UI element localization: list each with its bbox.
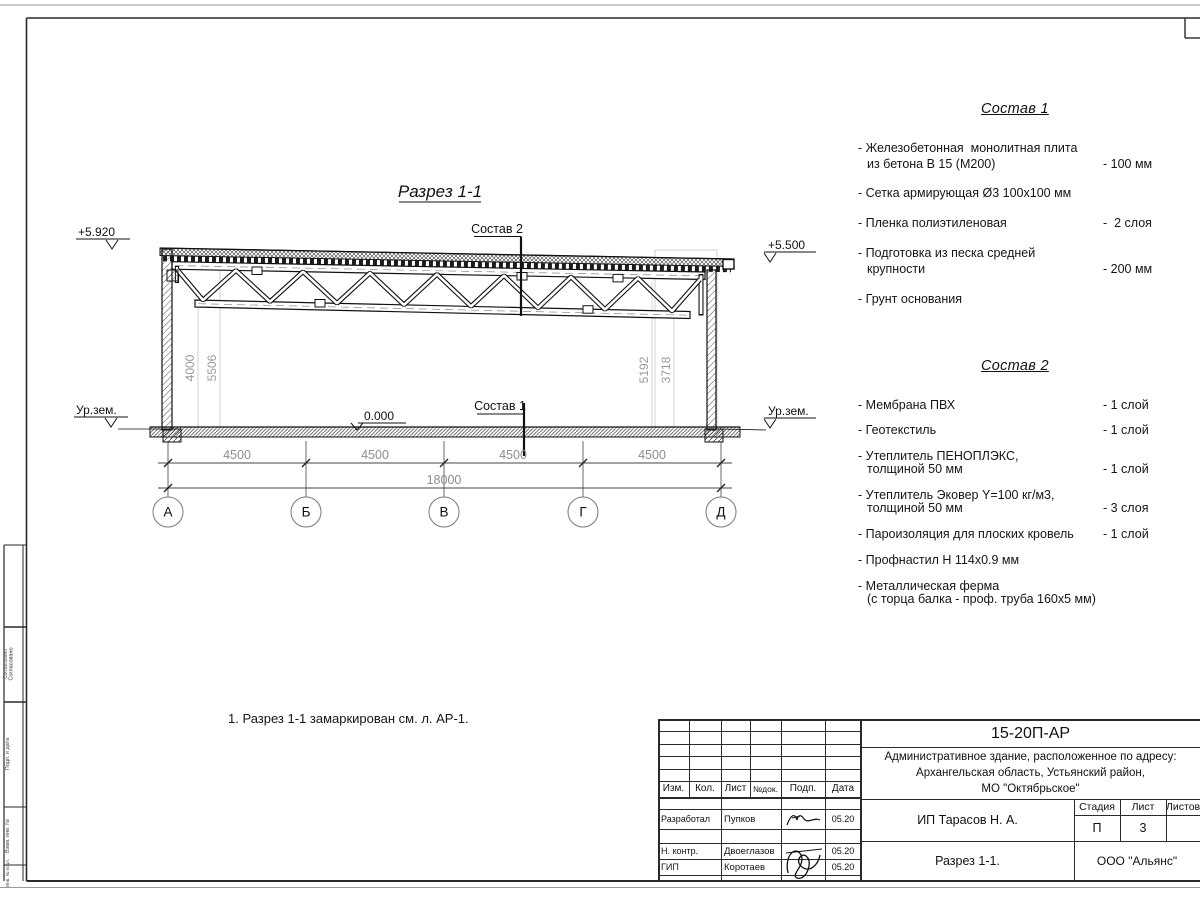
truss-bearing-left [167,270,178,281]
axis-label: В [439,505,448,520]
col-ndok: №док. [750,781,781,797]
sheet-value: 3 [1120,816,1166,841]
stage-label: Стадия [1074,800,1120,815]
comp2-item: толщиной 50 мм [867,502,963,515]
ground-level-right: Ур.зем. [764,404,816,428]
comp1-item-value: - 2 слоя [1103,217,1152,230]
comp2-item: (с торца балка - проф. труба 160х5 мм) [867,593,1096,606]
svg-text:5192: 5192 [637,356,651,383]
row-date: 05.20 [825,844,861,859]
elevation-top-left: +5.920 [76,225,130,249]
signature-gip [782,843,826,881]
comp2-item: толщиной 50 мм [867,463,963,476]
comp2-item: - Профнастил Н 114х0.9 мм [858,554,1019,567]
left-strip-label: Подп. и дата [5,737,11,770]
comp2-item-value: - 1 слой [1103,463,1149,476]
col-kol: Кол. [689,781,721,797]
sheet-title: Разрез 1-1. [861,842,1074,881]
foundation-left [163,429,181,442]
dimension-chain: 4500 4500 4500 4500 18000 [158,441,732,497]
left-strip-label: Взам. инв. № [5,819,11,853]
stage-value: П [1074,816,1120,841]
svg-text:Ур.зем.: Ур.зем. [768,404,809,418]
comp1-item: - Сетка армирующая Ø3 100х100 мм [858,187,1071,200]
title-block: Изм. Кол. Лист №док. Подп. Дата Разработ… [658,719,1200,881]
doc-number: 15-20П-АР [861,721,1200,747]
comp2-item-value: - 1 слой [1103,424,1149,437]
col-list: Лист [721,781,750,797]
svg-text:5506: 5506 [205,354,219,381]
sheet-label: Лист [1120,800,1166,815]
svg-text:4500: 4500 [638,448,666,462]
axis-bubbles: А Б В Г Д [153,497,736,527]
row-name: Пупков [724,810,781,829]
comp2-item-value: - 1 слой [1103,399,1149,412]
ground-level-left: Ур.зем. [74,403,128,427]
comp1-item: - Железобетонная монолитная плита [858,142,1077,155]
elevation-top-right: +5.500 [764,238,816,262]
comp2-item-value: - 3 слоя [1103,502,1148,515]
row-name: Коротаев [724,860,781,875]
row-role: Разработал [661,810,721,829]
project-line: Архангельская область, Устьянский район, [861,765,1200,781]
svg-text:4500: 4500 [223,448,251,462]
svg-text:4000: 4000 [183,354,197,381]
left-strip-label: Согласовано [9,647,15,680]
client-name: ИП Тарасов Н. А. [861,800,1074,841]
svg-text:3718: 3718 [659,356,673,383]
project-line: МО "Октябрьское" [861,781,1200,797]
svg-text:4500: 4500 [499,448,527,462]
view-title-text: Разрез 1-1 [398,182,482,201]
row-role: Н. контр. [661,844,721,859]
svg-text:+5.920: +5.920 [78,225,115,239]
comp1-item: - Грунт основания [858,293,962,306]
vertical-dimensions: 4000 5506 5192 3718 [183,354,673,383]
comp2-title: Состав 2 [981,358,1049,374]
left-margin-strip: Согласовано Согласовано Подп. и дата Вза… [3,545,27,887]
signature-razrabotal [784,811,824,829]
comp1-item-value: - 100 мм [1103,158,1152,171]
steel-truss [172,262,705,319]
column-axis-D [707,270,716,430]
svg-text:0.000: 0.000 [364,409,394,423]
comp1-leader-label: Состав 1 [474,399,526,413]
sheets-label: Листов [1166,800,1200,815]
foundation-right [705,429,723,442]
col-data: Дата [825,781,861,797]
corner-box [1185,18,1200,38]
comp1-item: - Подготовка из песка средней [858,247,1035,260]
comp2-item: - Пароизоляция для плоских кровель [858,528,1074,541]
col-izm: Изм. [658,781,689,797]
comp2-item: - Мембрана ПВХ [858,399,955,412]
edge-beam [723,260,734,270]
total-dimension: 18000 [427,473,462,487]
view-title: Разрез 1-1 [398,182,482,202]
comp1-item-value: - 200 мм [1103,263,1152,276]
row-date: 05.20 [825,860,861,875]
comp1-item: из бетона В 15 (М200) [867,158,995,171]
left-strip-label: Согласовано [3,649,9,679]
comp2-leader-label: Состав 2 [471,222,523,236]
axis-label: А [163,505,172,520]
comp2-item-value: - 1 слой [1103,528,1149,541]
row-role: ГИП [661,860,721,875]
floor-slab [118,427,766,442]
axis-label: Б [302,505,311,520]
row-name: Двоеглазов [724,844,781,859]
comp2-item: - Геотекстиль [858,424,936,437]
comp1-title: Состав 1 [981,101,1049,117]
left-strip-label: Инв. № подл. [5,859,10,887]
drawing-sheet: Согласовано Согласовано Подп. и дата Вза… [0,0,1200,900]
axis-label: Г [579,505,587,520]
axis-label: Д [716,505,725,520]
svg-text:Ур.зем.: Ур.зем. [76,403,117,417]
sheet-note: 1. Разрез 1-1 замаркирован см. л. АР-1. [228,711,469,726]
svg-text:+5.500: +5.500 [768,238,805,252]
project-line: Административное здание, расположенное п… [861,749,1200,765]
company-name: ООО "Альянс" [1074,842,1200,881]
comp1-item: - Пленка полиэтиленовая [858,217,1007,230]
row-date: 05.20 [825,810,861,829]
comp1-item: крупности [867,263,925,276]
col-podp: Подп. [781,781,825,797]
svg-text:4500: 4500 [361,448,389,462]
